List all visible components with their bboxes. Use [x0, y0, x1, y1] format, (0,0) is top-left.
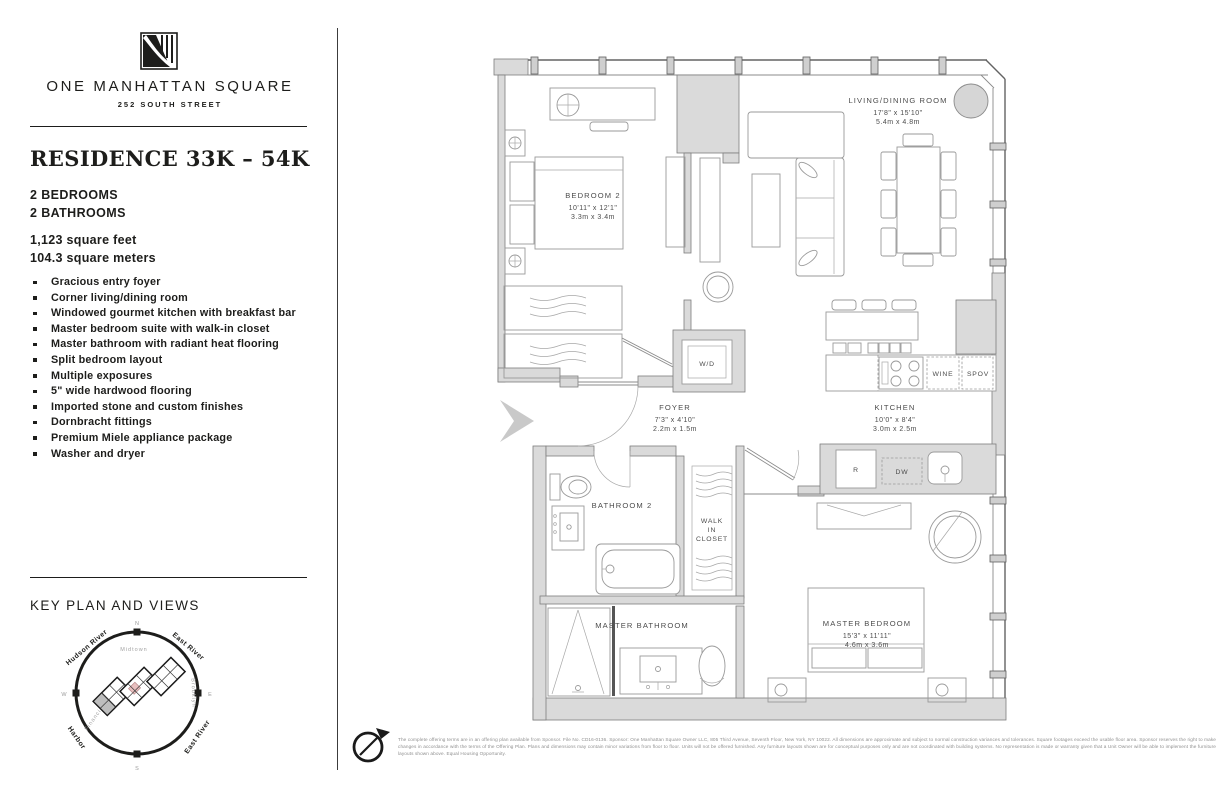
chaise [748, 112, 844, 158]
compass-w-label: W [61, 692, 67, 698]
living-dims-ft: 17'8" x 15'10" [873, 110, 922, 117]
master-bedroom-dims-m: 4.6m x 3.6m [845, 642, 889, 649]
legal-disclaimer: The complete offering terms are in an of… [398, 736, 1216, 757]
compass-s-label: S [135, 766, 139, 772]
divider-top [30, 126, 307, 127]
north-compass-icon [350, 722, 396, 768]
feature-item: 5" wide hardwood flooring [30, 385, 320, 401]
speed-oven-label: SPOV [967, 371, 989, 378]
brand-address: 252 SOUTH STREET [30, 100, 310, 109]
bedroom2-furniture [504, 88, 685, 378]
feature-item: Premium Miele appliance package [30, 432, 320, 448]
compass-n-label: N [135, 621, 139, 627]
master-bedroom-label: MASTER BEDROOM [823, 619, 911, 628]
foyer-dims-ft: 7'3" x 4'10" [655, 417, 696, 424]
gallery-furniture [700, 158, 733, 302]
area-sqft: 1,123 square feet [30, 231, 156, 249]
brooklyn-label: Brooklyn [189, 678, 196, 708]
bathroom2-label: BATHROOM 2 [592, 501, 653, 510]
bathroom-count: 2 BATHROOMS [30, 204, 126, 222]
floor-plan: BEDROOM 2 10'11" x 12'1" 3.3m x 3.4m [490, 50, 1020, 730]
living-dims-m: 5.4m x 4.8m [876, 119, 920, 126]
entry-arrow-icon [500, 400, 534, 442]
washer-dryer-label: W/D [699, 361, 715, 368]
area-sqm: 104.3 square meters [30, 249, 156, 267]
feature-item: Split bedroom layout [30, 354, 320, 370]
entry-door [578, 382, 638, 446]
master-bedroom-dims-ft: 15'3" x 11'11" [843, 633, 891, 640]
kitchen-dims-m: 3.0m x 2.5m [873, 426, 917, 433]
breakfast-bar [826, 312, 918, 340]
bathroom2-fixtures [550, 451, 680, 594]
feature-item: Washer and dryer [30, 448, 320, 464]
master-vanity [620, 648, 702, 694]
area-block: 1,123 square feet 104.3 square meters [30, 231, 156, 267]
structural-column [954, 84, 988, 118]
dining-table [897, 147, 940, 253]
keyplan-diagram: N S W E Hudson River East River Harbor E… [28, 615, 258, 777]
feature-list: Gracious entry foyer Corner living/dinin… [30, 276, 320, 463]
dishwasher-label: DW [896, 469, 909, 476]
feature-item: Corner living/dining room [30, 292, 320, 308]
bedroom2-dims-m: 3.3m x 3.4m [571, 214, 615, 221]
bedroom2-label: BEDROOM 2 [565, 191, 620, 200]
foyer-dims-m: 2.2m x 1.5m [653, 426, 697, 433]
master-bathroom-fixtures [548, 606, 725, 696]
midtown-label: Midtown [120, 647, 147, 653]
residence-title: RESIDENCE 33K – 54K [30, 146, 310, 171]
bed-2 [535, 157, 623, 249]
keyplan-title: KEY PLAN AND VIEWS [30, 598, 200, 613]
floorplan-sheet: ONE MANHATTAN SQUARE 252 SOUTH STREET RE… [0, 0, 1224, 792]
refrigerator-label: R [853, 467, 859, 474]
kitchen-label: KITCHEN [874, 403, 915, 412]
foyer-label: FOYER [659, 403, 691, 412]
master-bathroom-label: MASTER BATHROOM [595, 621, 689, 630]
wine-fridge-label: WINE [933, 371, 954, 378]
brand-name: ONE MANHATTAN SQUARE [30, 78, 310, 95]
sofa [796, 158, 844, 276]
wic-label-1: WALK [701, 518, 723, 525]
feature-item: Master bedroom suite with walk-in closet [30, 323, 320, 339]
living-label: LIVING/DINING ROOM [848, 96, 947, 105]
bedroom2-dims-ft: 10'11" x 12'1" [569, 205, 618, 212]
round-chair [929, 511, 981, 563]
feature-item: Dornbracht fittings [30, 416, 320, 432]
feature-item: Imported stone and custom finishes [30, 401, 320, 417]
hudson-river-label: Hudson River [65, 629, 109, 667]
coffee-table [752, 174, 780, 247]
oms-logo-icon [140, 32, 178, 70]
vertical-divider [337, 28, 338, 770]
wic-label-3: CLOSET [696, 536, 728, 543]
feature-item: Windowed gourmet kitchen with breakfast … [30, 307, 320, 323]
bedroom-count: 2 BEDROOMS [30, 186, 126, 204]
closet [504, 286, 622, 330]
bed-bath-count: 2 BEDROOMS 2 BATHROOMS [30, 186, 126, 222]
living-furniture [748, 84, 988, 276]
wic-label-2: IN [708, 527, 716, 534]
divider-bottom [30, 577, 307, 578]
building-footprint [93, 641, 185, 733]
kitchen-dims-ft: 10'0" x 8'4" [875, 417, 916, 424]
feature-item: Multiple exposures [30, 370, 320, 386]
feature-item: Gracious entry foyer [30, 276, 320, 292]
feature-item: Master bathroom with radiant heat floori… [30, 338, 320, 354]
compass-e-label: E [208, 692, 212, 698]
